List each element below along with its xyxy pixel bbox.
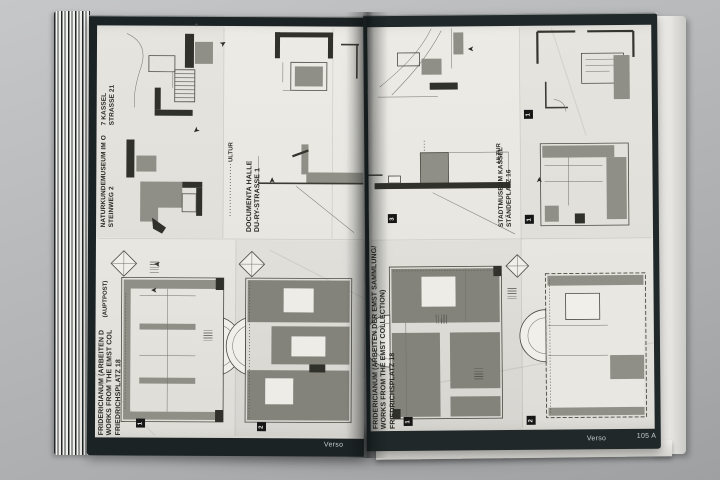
caption-line: STEINWEG 2 [108,135,116,227]
caption-line: DU-RY-STRASSE 1 [254,161,263,233]
floor-plans-right [367,25,655,431]
plan-number-badge: 3 [388,214,397,223]
caption-line: WORKS FROM THE EMST COL [106,330,115,436]
plan-number-badge: 1 [525,215,534,224]
caption-kassel-strasse21: 7 KASSEL STRASSE 21 [101,85,117,126]
north-arrow-icon: ➤ [269,177,277,184]
right-page: ULTUR STADTMUSEUM KASSEL STÄNDEPLATZ 16 … [363,13,661,452]
micro-legend-lines [150,262,159,273]
caption-naturkundemuseum: NATURKUNDEMUSEUM IM O STEINWEG 2 [100,135,116,227]
plan-number-badge: 1 [404,417,413,426]
floor-plans-left [95,25,366,438]
caption-documenta-halle: DOCUMENTA HALLE DU-RY-STRASSE 1 [246,161,263,233]
caption-line: FRIEDRICHSPLATZ 18 [114,330,123,436]
plan-fridericianum-level1 [110,251,243,422]
plan-number-badge: 1 [136,419,145,428]
photo-backdrop: 7 KASSEL STRASSE 21 NATURKUNDEMUSEUM IM … [0,0,720,480]
caption-line: STADTMUSEUM KASSEL [497,147,505,227]
plan-number-badge: 1 [524,110,533,119]
footer-verso-right: Verso [587,435,606,442]
caption-line: ULTUR [228,142,235,162]
registration-mark-icon: + [194,22,198,29]
plan-arrow-icon: ➤ [467,44,474,52]
page-fore-edge-stripes [54,11,90,455]
page-edge-highlight [89,15,366,17]
micro-legend-lines [507,288,516,299]
plan-fridericianum-upper [506,254,647,419]
micro-legend-lines [203,330,212,341]
micro-legend-lines [474,368,483,379]
caption-fridericianum-left: FRIDERICIANUM (ARBEITEN D WORKS FROM THE… [98,330,123,436]
caption-line: FRIEDRICHSPLATZ 18 [388,246,398,430]
plan-fragment-topright [275,32,359,90]
caption-line: 7 KASSEL [101,85,109,126]
footer-verso-left: Verso [324,442,343,449]
caption-hauptpost-fragment: (AUPTPOST) [103,281,110,318]
page-number: 105 A [637,433,656,440]
plan-number-badge: 2 [257,422,266,431]
caption-fridericianum-right: FRIDERICIANUM (ARBEITEN DER EMST SAMMLUN… [371,246,397,430]
plan-arrow-icon: ➤ [151,286,158,294]
caption-line: STÄNDEPLATZ 16 [505,147,513,227]
caption-line: STRASSE 21 [108,85,116,126]
caption-stadtmuseum: STADTMUSEUM KASSEL STÄNDEPLATZ 16 [497,147,513,227]
plan-curved-site [377,28,464,97]
caption-line: (AUPTPOST) [103,281,110,318]
micro-legend-lines [436,315,447,324]
page-edge-highlight [363,13,657,17]
plan-number-badge: 2 [527,416,536,425]
left-page: 7 KASSEL STRASSE 21 NATURKUNDEMUSEUM IM … [87,15,366,456]
north-arrow-icon: ➤ [536,176,544,183]
caption-line: NATURKUNDEMUSEUM IM O [100,135,108,227]
caption-kultur-fragment: ULTUR [228,142,235,162]
